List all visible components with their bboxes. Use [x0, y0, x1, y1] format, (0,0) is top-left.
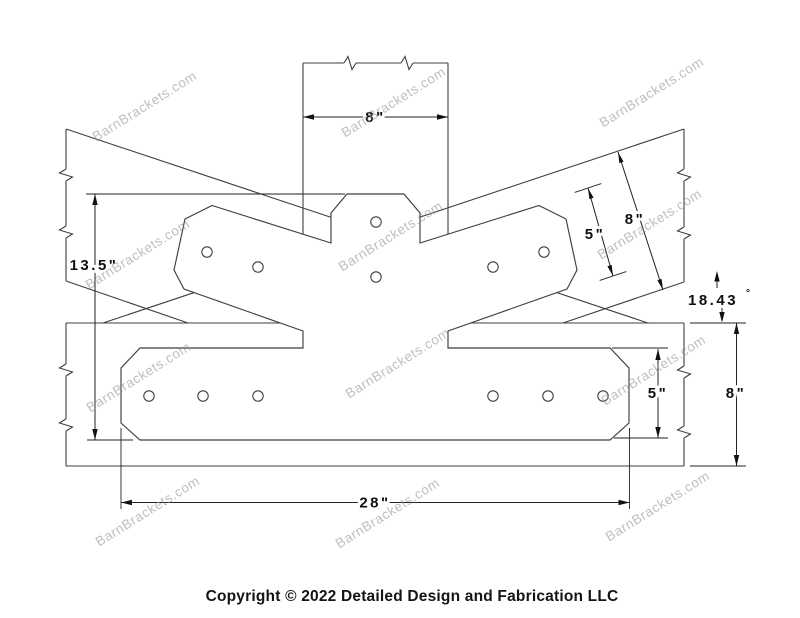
bolt-hole [488, 262, 498, 272]
arrowhead-left [303, 114, 314, 119]
watermark-text: BarnBrackets.com [333, 475, 443, 551]
degree-symbol: ° [746, 288, 750, 299]
bolt-hole [144, 391, 154, 401]
arrowhead-up [734, 323, 739, 334]
arrowhead-down [657, 279, 663, 290]
dim-arm-width: 5" [575, 184, 627, 281]
arrowhead-up [714, 271, 719, 282]
break-mark [59, 169, 73, 181]
bracket-plate [121, 194, 629, 440]
watermark-text: BarnBrackets.com [597, 54, 707, 130]
dim-angle: 18.43 ° [688, 271, 750, 323]
arrowhead-down [607, 265, 613, 276]
drawing-canvas: 8" 13.5" 5" 8" [0, 0, 800, 618]
bolt-hole [253, 391, 263, 401]
arrowhead-down [655, 427, 660, 438]
arrowhead-down [719, 312, 724, 323]
watermark-text: BarnBrackets.com [83, 216, 193, 292]
arrowhead-down [92, 429, 97, 440]
arrowhead-up [92, 194, 97, 205]
arrowhead-up [618, 152, 624, 163]
bolt-hole [539, 247, 549, 257]
bolt-hole [198, 391, 208, 401]
left-rafter-bottom-edge [66, 281, 188, 323]
bolt-hole [371, 217, 381, 227]
break-mark [677, 169, 691, 181]
watermark-text: BarnBrackets.com [339, 64, 449, 140]
bolt-hole [488, 391, 498, 401]
break-mark [677, 426, 691, 438]
right-rafter-bottom-edge [563, 282, 684, 323]
arrowhead-left [121, 500, 132, 505]
watermark-text: BarnBrackets.com [595, 186, 705, 262]
arrowhead-down [734, 455, 739, 466]
watermark-text: BarnBrackets.com [603, 468, 713, 544]
break-mark [401, 56, 413, 70]
bolt-hole [253, 262, 263, 272]
bracket-plate-outline [121, 194, 629, 440]
copyright-text: Copyright © 2022 Detailed Design and Fab… [206, 588, 619, 605]
bracket-technical-drawing: 8" 13.5" 5" 8" [0, 0, 800, 618]
dim-label-beam-depth: 8" [726, 385, 746, 402]
break-mark [344, 56, 356, 70]
break-mark [59, 226, 73, 238]
break-mark [677, 227, 691, 239]
break-mark [59, 364, 73, 376]
arrowhead-up [588, 188, 594, 199]
arrowhead-right [619, 500, 630, 505]
arrowhead-right [437, 114, 448, 119]
bolt-hole [371, 272, 381, 282]
break-mark [677, 366, 691, 378]
break-mark [59, 419, 73, 431]
dim-label-plate-height: 5" [648, 385, 668, 402]
dim-label-angle: 18.43 [688, 292, 738, 309]
watermark-text: BarnBrackets.com [90, 68, 200, 144]
watermark-text: BarnBrackets.com [93, 473, 203, 549]
bolt-hole [543, 391, 553, 401]
dim-label-arm-width: 5" [585, 226, 605, 243]
bolt-hole [202, 247, 212, 257]
